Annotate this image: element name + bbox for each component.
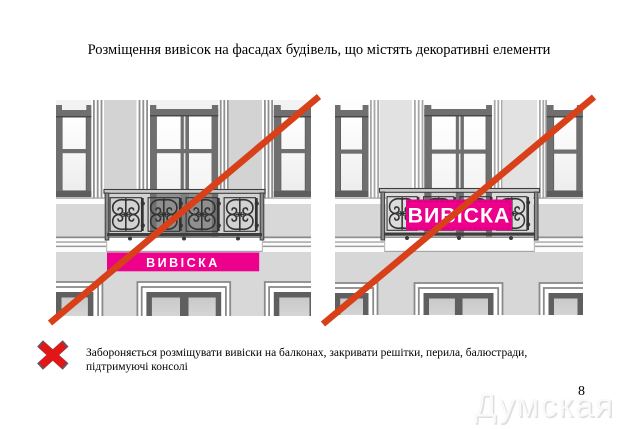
svg-text:8: 8 (578, 384, 585, 399)
svg-text:Забороняється розміщувати виві: Забороняється розміщувати вивіски на бал… (86, 347, 527, 359)
svg-text:Думская: Думская (474, 387, 614, 424)
svg-text:підтримуючі консолі: підтримуючі консолі (86, 361, 188, 373)
svg-text:ВИВІСКА: ВИВІСКА (146, 256, 220, 270)
svg-text:Розміщення вивісок на фасадах: Розміщення вивісок на фасадах будівель, … (88, 42, 551, 58)
